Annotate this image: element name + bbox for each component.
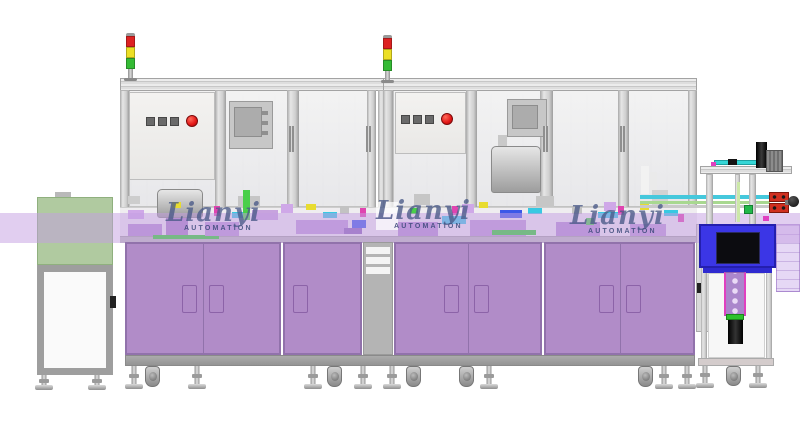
machine-part: [281, 204, 293, 213]
enclosure1-frame-column: [120, 90, 129, 207]
foot-base: [480, 384, 498, 389]
tower-light-green: [126, 58, 135, 69]
foot-base: [304, 384, 322, 389]
sensor-block: [728, 159, 737, 165]
machine-part: [604, 202, 616, 211]
gantry-post: [706, 174, 713, 228]
foot-nut: [387, 374, 397, 378]
automation-line-render: Lianyi AUTOMATION Lianyi AUTOMATION Lian…: [0, 0, 800, 438]
leveling-foot: [678, 366, 696, 389]
emergency-stop-button: [186, 115, 198, 127]
emergency-stop-button: [441, 113, 453, 125]
z-axis-rod: [737, 182, 740, 222]
junction-stripe: [366, 247, 390, 254]
cabinet-door-handle: [626, 285, 641, 313]
caster-wheel: [406, 366, 421, 387]
signal-tower: [381, 35, 394, 83]
foot-base: [749, 383, 767, 388]
caster-wheel: [459, 366, 474, 387]
junction-stripe: [366, 267, 390, 274]
tower-light-red: [383, 38, 392, 49]
magenta-fitting: [763, 216, 769, 221]
cabinet-door-seam: [620, 244, 621, 353]
enclosure2-frame-column: [383, 90, 393, 207]
panel-button: [158, 117, 167, 126]
foot-base: [35, 385, 53, 390]
stand-latch: [110, 296, 116, 308]
enclosure1-top-rail: [120, 78, 390, 91]
foot-nut: [659, 374, 669, 378]
junction-stripe: [366, 257, 390, 264]
cabinet-door-handle: [599, 285, 614, 313]
foot-base: [678, 384, 696, 389]
door-handle: [366, 126, 374, 152]
foot-base: [655, 384, 673, 389]
machine-part: [536, 196, 554, 207]
magenta-fitting: [711, 162, 716, 166]
hmi-key: [262, 131, 268, 135]
green-coupler: [744, 205, 753, 214]
panel-button: [425, 115, 434, 124]
caster-wheel: [327, 366, 342, 387]
door-handle: [543, 126, 551, 152]
foot-nut: [39, 379, 49, 383]
leveling-foot: [188, 366, 206, 389]
hmi-screen: [234, 107, 262, 137]
leveling-foot: [125, 366, 143, 389]
machine-part: [414, 194, 430, 205]
foot-nut: [358, 374, 368, 378]
leveling-foot: [383, 366, 401, 389]
tower-base: [124, 78, 137, 81]
hand-knob: [788, 196, 799, 207]
leveling-foot: [88, 375, 106, 390]
leveling-foot: [354, 366, 372, 389]
cabinet-door-handle: [474, 285, 489, 313]
foot-base: [354, 384, 372, 389]
cabinet-door-seam: [468, 244, 469, 353]
hmi-panel: [507, 99, 547, 137]
signal-tower: [124, 33, 137, 81]
panel-button: [401, 115, 410, 124]
hmi-panel: [229, 101, 273, 149]
foot-nut: [192, 374, 202, 378]
door-handle: [620, 126, 628, 152]
foot-nut: [484, 374, 494, 378]
panel-button: [413, 115, 422, 124]
hmi-key: [262, 111, 268, 115]
machine-part: [479, 202, 488, 208]
enclosure2-frame-column: [466, 90, 477, 207]
enclosure1-control-door: [129, 92, 215, 180]
leveling-foot: [696, 366, 714, 388]
foot-nut: [682, 374, 692, 378]
cabinet-door-handle: [293, 285, 308, 313]
leveling-foot: [304, 366, 322, 389]
foot-base: [125, 384, 143, 389]
cabinet-base-strip: [125, 355, 695, 366]
machine-part: [306, 204, 316, 210]
foot-base: [88, 385, 106, 390]
tower-light-yellow: [126, 47, 135, 58]
machine-base: [698, 358, 774, 366]
machine-part: [172, 202, 181, 208]
conveyor-stand-cabinet: [37, 265, 113, 375]
tower-pole: [385, 71, 390, 80]
panel-button: [146, 117, 155, 126]
conveyor-top-vent: [55, 192, 71, 197]
foot-nut: [92, 379, 102, 383]
leveling-foot: [35, 375, 53, 390]
leveling-foot: [655, 366, 673, 389]
leveling-foot: [480, 366, 498, 389]
gantry-post: [749, 174, 756, 228]
caster-wheel: [726, 366, 741, 386]
foot-nut: [129, 374, 139, 378]
stepper-motor: [766, 150, 783, 172]
gripper-cylinder: [728, 320, 743, 344]
foot-base: [383, 384, 401, 389]
panel-button: [170, 117, 179, 126]
hmi-screen: [512, 105, 538, 129]
cabinet-door-handle: [182, 285, 197, 313]
cabinet-door-handle: [444, 285, 459, 313]
chamber-opening: [716, 232, 760, 264]
enclosure2-frame-column: [688, 90, 697, 207]
tower-pole: [128, 69, 133, 78]
cabinet-door-handle: [209, 285, 224, 313]
leveling-foot: [749, 366, 767, 388]
machine-part: [462, 204, 474, 213]
process-band-overlay: [0, 213, 800, 243]
tower-light-yellow: [383, 49, 392, 60]
machine-part: [128, 196, 140, 204]
foot-nut: [308, 374, 318, 378]
cabinet-door-seam: [203, 244, 204, 353]
gripper-bracket: [724, 272, 746, 316]
tower-base: [381, 80, 394, 83]
caster-wheel: [145, 366, 160, 387]
tower-light-green: [383, 60, 392, 71]
foot-base: [696, 383, 714, 388]
enclosure1-frame-column: [215, 90, 226, 207]
foot-nut: [753, 373, 763, 377]
foot-base: [188, 384, 206, 389]
hmi-key: [262, 121, 268, 125]
bowl-feeder-drum: [491, 146, 541, 193]
bottle: [641, 166, 649, 194]
caster-wheel: [638, 366, 653, 387]
door-handle: [289, 126, 297, 152]
foot-nut: [700, 373, 710, 377]
tower-light-red: [126, 36, 135, 47]
